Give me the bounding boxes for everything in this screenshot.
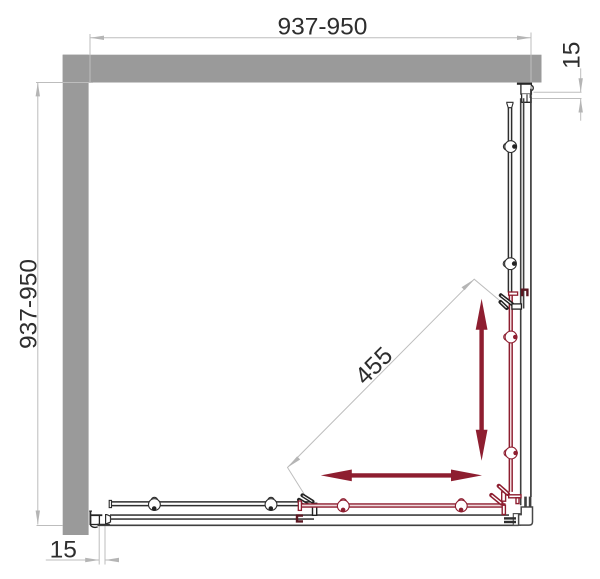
svg-text:937-950: 937-950 <box>277 14 367 41</box>
svg-text:15: 15 <box>50 537 77 564</box>
svg-text:15: 15 <box>559 42 586 69</box>
svg-text:455: 455 <box>350 342 398 390</box>
svg-text:937-950: 937-950 <box>16 259 43 349</box>
